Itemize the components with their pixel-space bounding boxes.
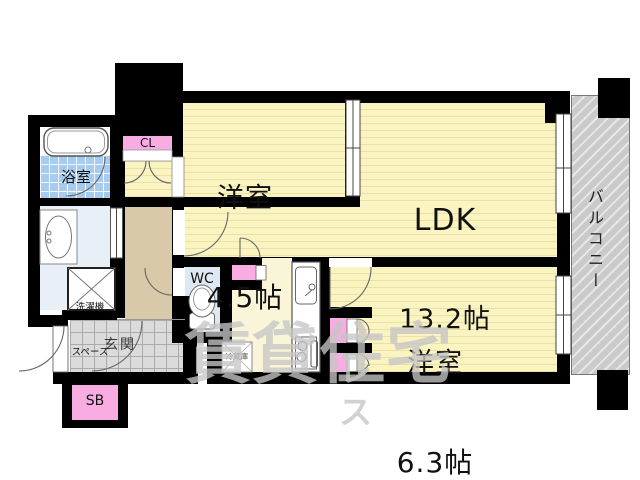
western-63-name: 洋室 (355, 347, 515, 380)
label-refrigerator: 冷蔵庫 (220, 351, 254, 362)
floor-bath-tub-area (40, 127, 113, 158)
wall-left-top (28, 115, 115, 127)
laundry-line-1: 洗濯機 (60, 300, 120, 315)
wall-45-ldk-divider (345, 91, 360, 207)
label-balcony: バルコニー (582, 165, 606, 315)
western-45-name: 洋室 (170, 182, 320, 215)
door-arc-front-door (19, 326, 64, 371)
balcony-pillar-top (598, 78, 630, 118)
room-label-western-45: 洋室 4.5帖 (170, 116, 320, 380)
label-bathroom: 浴室 (44, 166, 108, 187)
ldk-name: LDK (375, 204, 515, 237)
closet-63-box-2 (330, 353, 348, 372)
wall-bath-wash-divider (40, 198, 113, 206)
wall-top (178, 91, 570, 103)
closet-63-box-1 (330, 318, 348, 343)
balcony-pillar-bottom (597, 370, 628, 410)
label-shoebox: SB (72, 393, 118, 409)
label-wc: WC (182, 271, 222, 287)
floor-hallway (125, 207, 172, 320)
western-63-size: 6.3帖 (355, 446, 515, 479)
floor-plan: 洋室 4.5帖 LDK 13.2帖 洋室 6.3帖 浴室 CL WC 洗濯機 ス… (0, 0, 640, 480)
wall-left (28, 115, 40, 318)
room-label-western-63: 洋室 6.3帖 (355, 281, 515, 480)
wall-right-window-col (557, 91, 570, 382)
label-laundry: 洗濯機 スペース (60, 270, 120, 390)
label-closet-cl: CL (123, 136, 172, 151)
label-entrance: 玄関 (85, 334, 155, 354)
